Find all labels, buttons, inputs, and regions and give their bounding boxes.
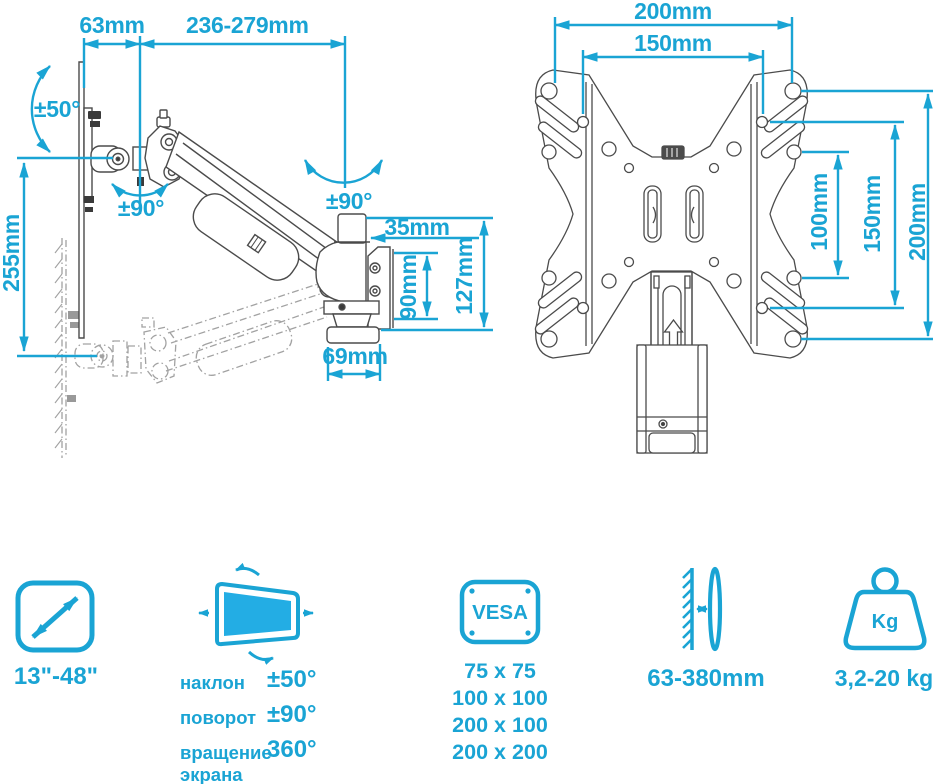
dim-arm-swivel: ±90°: [106, 197, 176, 220]
head-post: [338, 214, 366, 243]
vesa-size-item: 200 x 200: [440, 739, 560, 766]
tilt-value: ±50°: [267, 668, 316, 692]
spec-row-swivel: поворот ±90°: [180, 703, 316, 729]
screen-fill: [224, 592, 291, 636]
dim-hole-width-outer: 200mm: [613, 0, 733, 23]
dim-hole-height-mid: 150mm: [861, 174, 885, 254]
ghost-plate-hatch: [55, 244, 62, 448]
rotate-arrow-top: [236, 568, 259, 575]
vesa-icon: VESA: [452, 576, 548, 648]
vesa-sizes-list: 75 x 75 100 x 100 200 x 100 200 x 200: [440, 658, 560, 766]
dim-vertical-travel: 255mm: [0, 213, 24, 293]
ghost-arm-beam: [166, 283, 327, 371]
wall-distance-label: 63-380mm: [645, 665, 767, 693]
kettlebell-icon: Kg: [836, 560, 936, 656]
vesa-plate: [533, 70, 809, 453]
infographic-canvas: 63mm 236-279mm ±50° ±90° ±90° 255mm 35mm…: [0, 0, 936, 784]
weight-label: 3,2-20 kg: [830, 665, 936, 692]
dim-arm-reach: 236-279mm: [186, 14, 306, 37]
rotate-name: вращение экрана: [180, 738, 267, 784]
head-body: [316, 242, 366, 302]
dim-hole-height-outer: 200mm: [906, 182, 930, 262]
vesa-size-item: 100 x 100: [440, 685, 560, 712]
dim-plate-height: 90mm: [397, 247, 421, 327]
kettlebell-handle: [874, 570, 897, 593]
dim-post-width: 35mm: [383, 216, 451, 239]
rotate-value: 360°: [267, 738, 317, 762]
screen-size-label: 13"-48": [0, 663, 112, 691]
rotate-arrow-bottom: [249, 652, 273, 660]
swivel-name: поворот: [180, 703, 267, 729]
dim-monitor-offset: 63mm: [72, 14, 152, 37]
spec-row-rotate: вращение экрана 360°: [180, 738, 317, 784]
vesa-size-item: 200 x 100: [440, 712, 560, 739]
screen-edge: [710, 569, 720, 649]
kg-icon-text: Kg: [872, 611, 899, 633]
head-band: [324, 301, 379, 314]
lower-bracket: [637, 272, 707, 453]
vesa-icon-text: VESA: [472, 601, 528, 624]
tilted-screen-icon: [193, 562, 321, 664]
wall-distance-icon: [668, 556, 730, 656]
ghost-monitor-plate: [62, 238, 66, 458]
dim-bracket-height: 127mm: [453, 236, 477, 316]
dim-hole-height-inner: 100mm: [808, 172, 832, 252]
dim-head-swivel: ±90°: [314, 190, 384, 213]
tilt-name: наклон: [180, 668, 267, 694]
ghost-gas-spring: [192, 317, 295, 379]
vesa-size-item: 75 x 75: [440, 658, 560, 685]
dim-tilt-range: ±50°: [26, 98, 88, 121]
dim-base-width: 69mm: [322, 345, 388, 368]
tilt-knob: [662, 146, 684, 159]
dim-hole-width-inner: 150mm: [613, 32, 733, 55]
travel-leaders: [17, 158, 113, 356]
screen-diagonal-icon: [10, 577, 102, 657]
head-swivel-arc: [305, 160, 382, 183]
head-foot: [327, 327, 379, 343]
swivel-value: ±90°: [267, 703, 316, 727]
spec-row-tilt: наклон ±50°: [180, 668, 316, 694]
